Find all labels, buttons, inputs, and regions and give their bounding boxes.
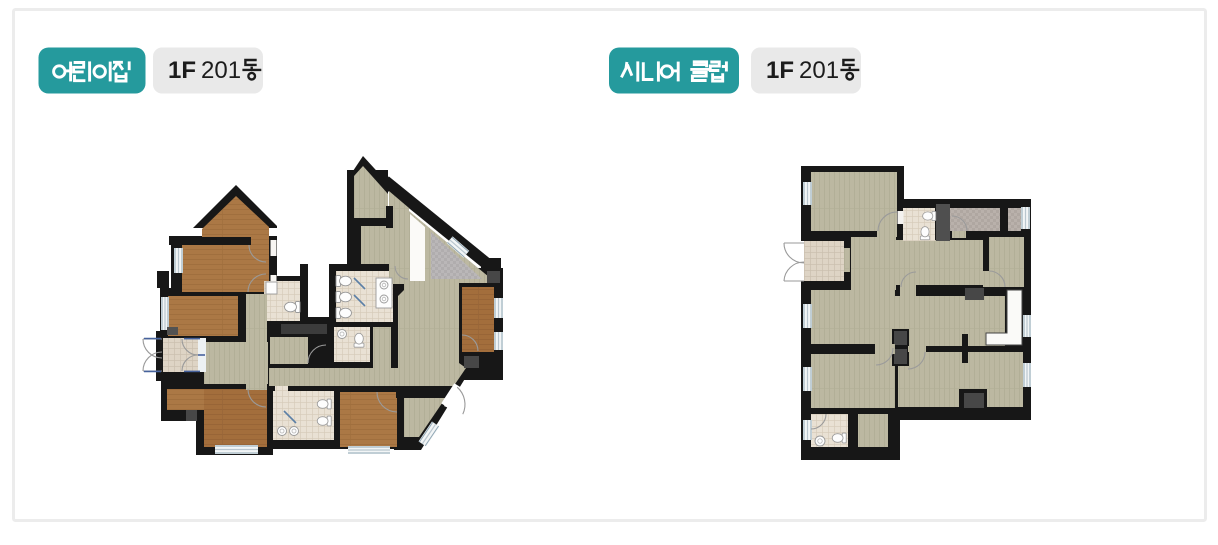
svg-text:201: 201 bbox=[201, 57, 241, 84]
svg-text:201: 201 bbox=[799, 57, 839, 84]
svg-text:1F: 1F bbox=[766, 57, 794, 84]
svg-text:1F: 1F bbox=[168, 57, 196, 84]
